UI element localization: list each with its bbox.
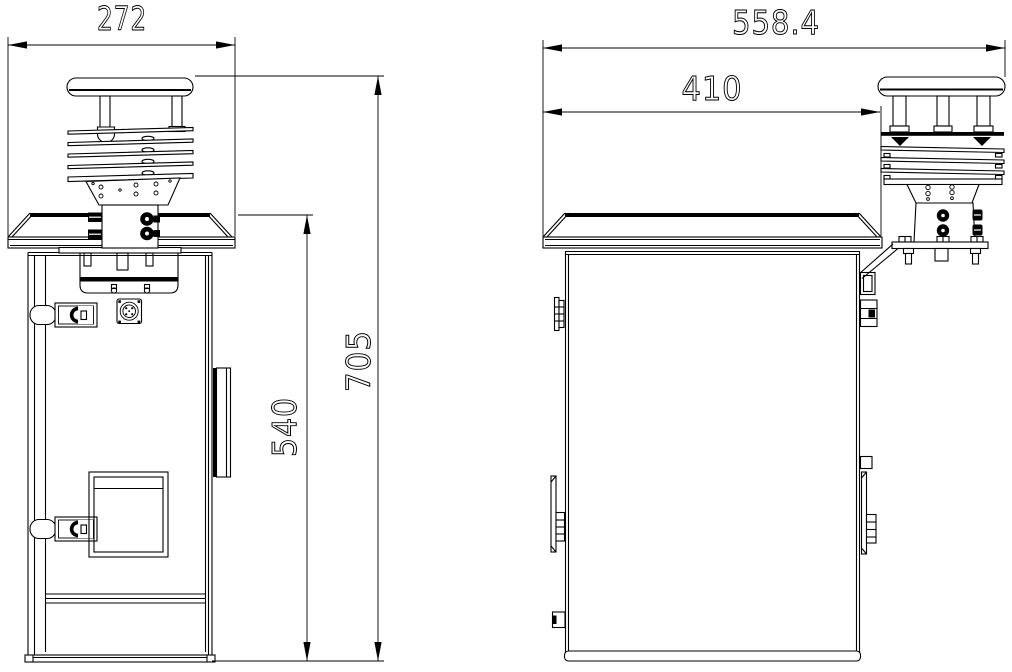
sensor-post <box>172 96 182 128</box>
door-window-front <box>89 472 168 557</box>
arrowhead <box>303 215 310 234</box>
latch-side-rear-upper <box>861 273 878 327</box>
roof-side <box>543 213 882 248</box>
arrowhead <box>8 41 27 48</box>
technical-drawing-canvas: 272 540 705 558.4 <box>0 0 1012 672</box>
arrowhead <box>374 642 381 661</box>
sensor-post <box>977 96 990 126</box>
sensor-mount-bracket-front <box>59 248 181 294</box>
bracket-bar <box>80 277 178 282</box>
dim-roof-depth: 410 <box>543 69 881 236</box>
arrowhead <box>986 44 1005 51</box>
radiation-shield-front <box>68 128 193 182</box>
sensor-post <box>937 96 949 126</box>
latch-side-front-bottom <box>553 612 566 628</box>
roof-fascia-side <box>543 237 882 248</box>
weather-station-drawing: 272 540 705 558.4 <box>0 0 1012 672</box>
arrowhead <box>374 76 381 95</box>
radiation-shield-side <box>881 132 1004 185</box>
latch-side-rear-lower <box>862 472 877 554</box>
dimensions: 272 540 705 558.4 <box>8 0 1005 661</box>
sensor-post <box>893 96 906 126</box>
hinge-side-front-upper <box>555 298 565 331</box>
dim-label-410: 410 <box>682 69 743 108</box>
cabinet-base-front <box>25 655 215 662</box>
front-view <box>8 78 235 662</box>
sensor-cap <box>67 78 193 96</box>
cabinet-base-side <box>565 651 861 661</box>
sensor-funnel-front <box>86 178 180 205</box>
sensor-funnel-side <box>907 185 979 204</box>
latch-side-rear-tab <box>861 457 873 469</box>
arrowhead <box>543 44 562 51</box>
aviation-connector-front <box>117 299 142 324</box>
door-hinge-upper-front <box>30 303 97 327</box>
sensor-cap <box>878 77 1005 96</box>
arrowhead <box>861 108 880 115</box>
side-view <box>543 77 1005 661</box>
hinge-side-front-lower <box>551 476 565 552</box>
sensor-post <box>100 96 110 128</box>
door-hinge-lower-front <box>30 517 97 541</box>
sensor-mount-block <box>102 205 158 248</box>
dim-label-705: 705 <box>339 330 378 392</box>
wind-sensor-front <box>67 78 193 248</box>
cabinet-side-body <box>565 252 861 662</box>
arrowhead <box>303 642 310 661</box>
dim-label-540: 540 <box>265 397 304 457</box>
dim-label-558.4: 558.4 <box>732 3 820 42</box>
dim-label-272: 272 <box>97 0 147 38</box>
arrowhead <box>216 41 235 48</box>
dim-body-height: 540 <box>238 215 313 661</box>
arrowhead <box>543 108 562 115</box>
side-rail-front <box>213 368 231 477</box>
